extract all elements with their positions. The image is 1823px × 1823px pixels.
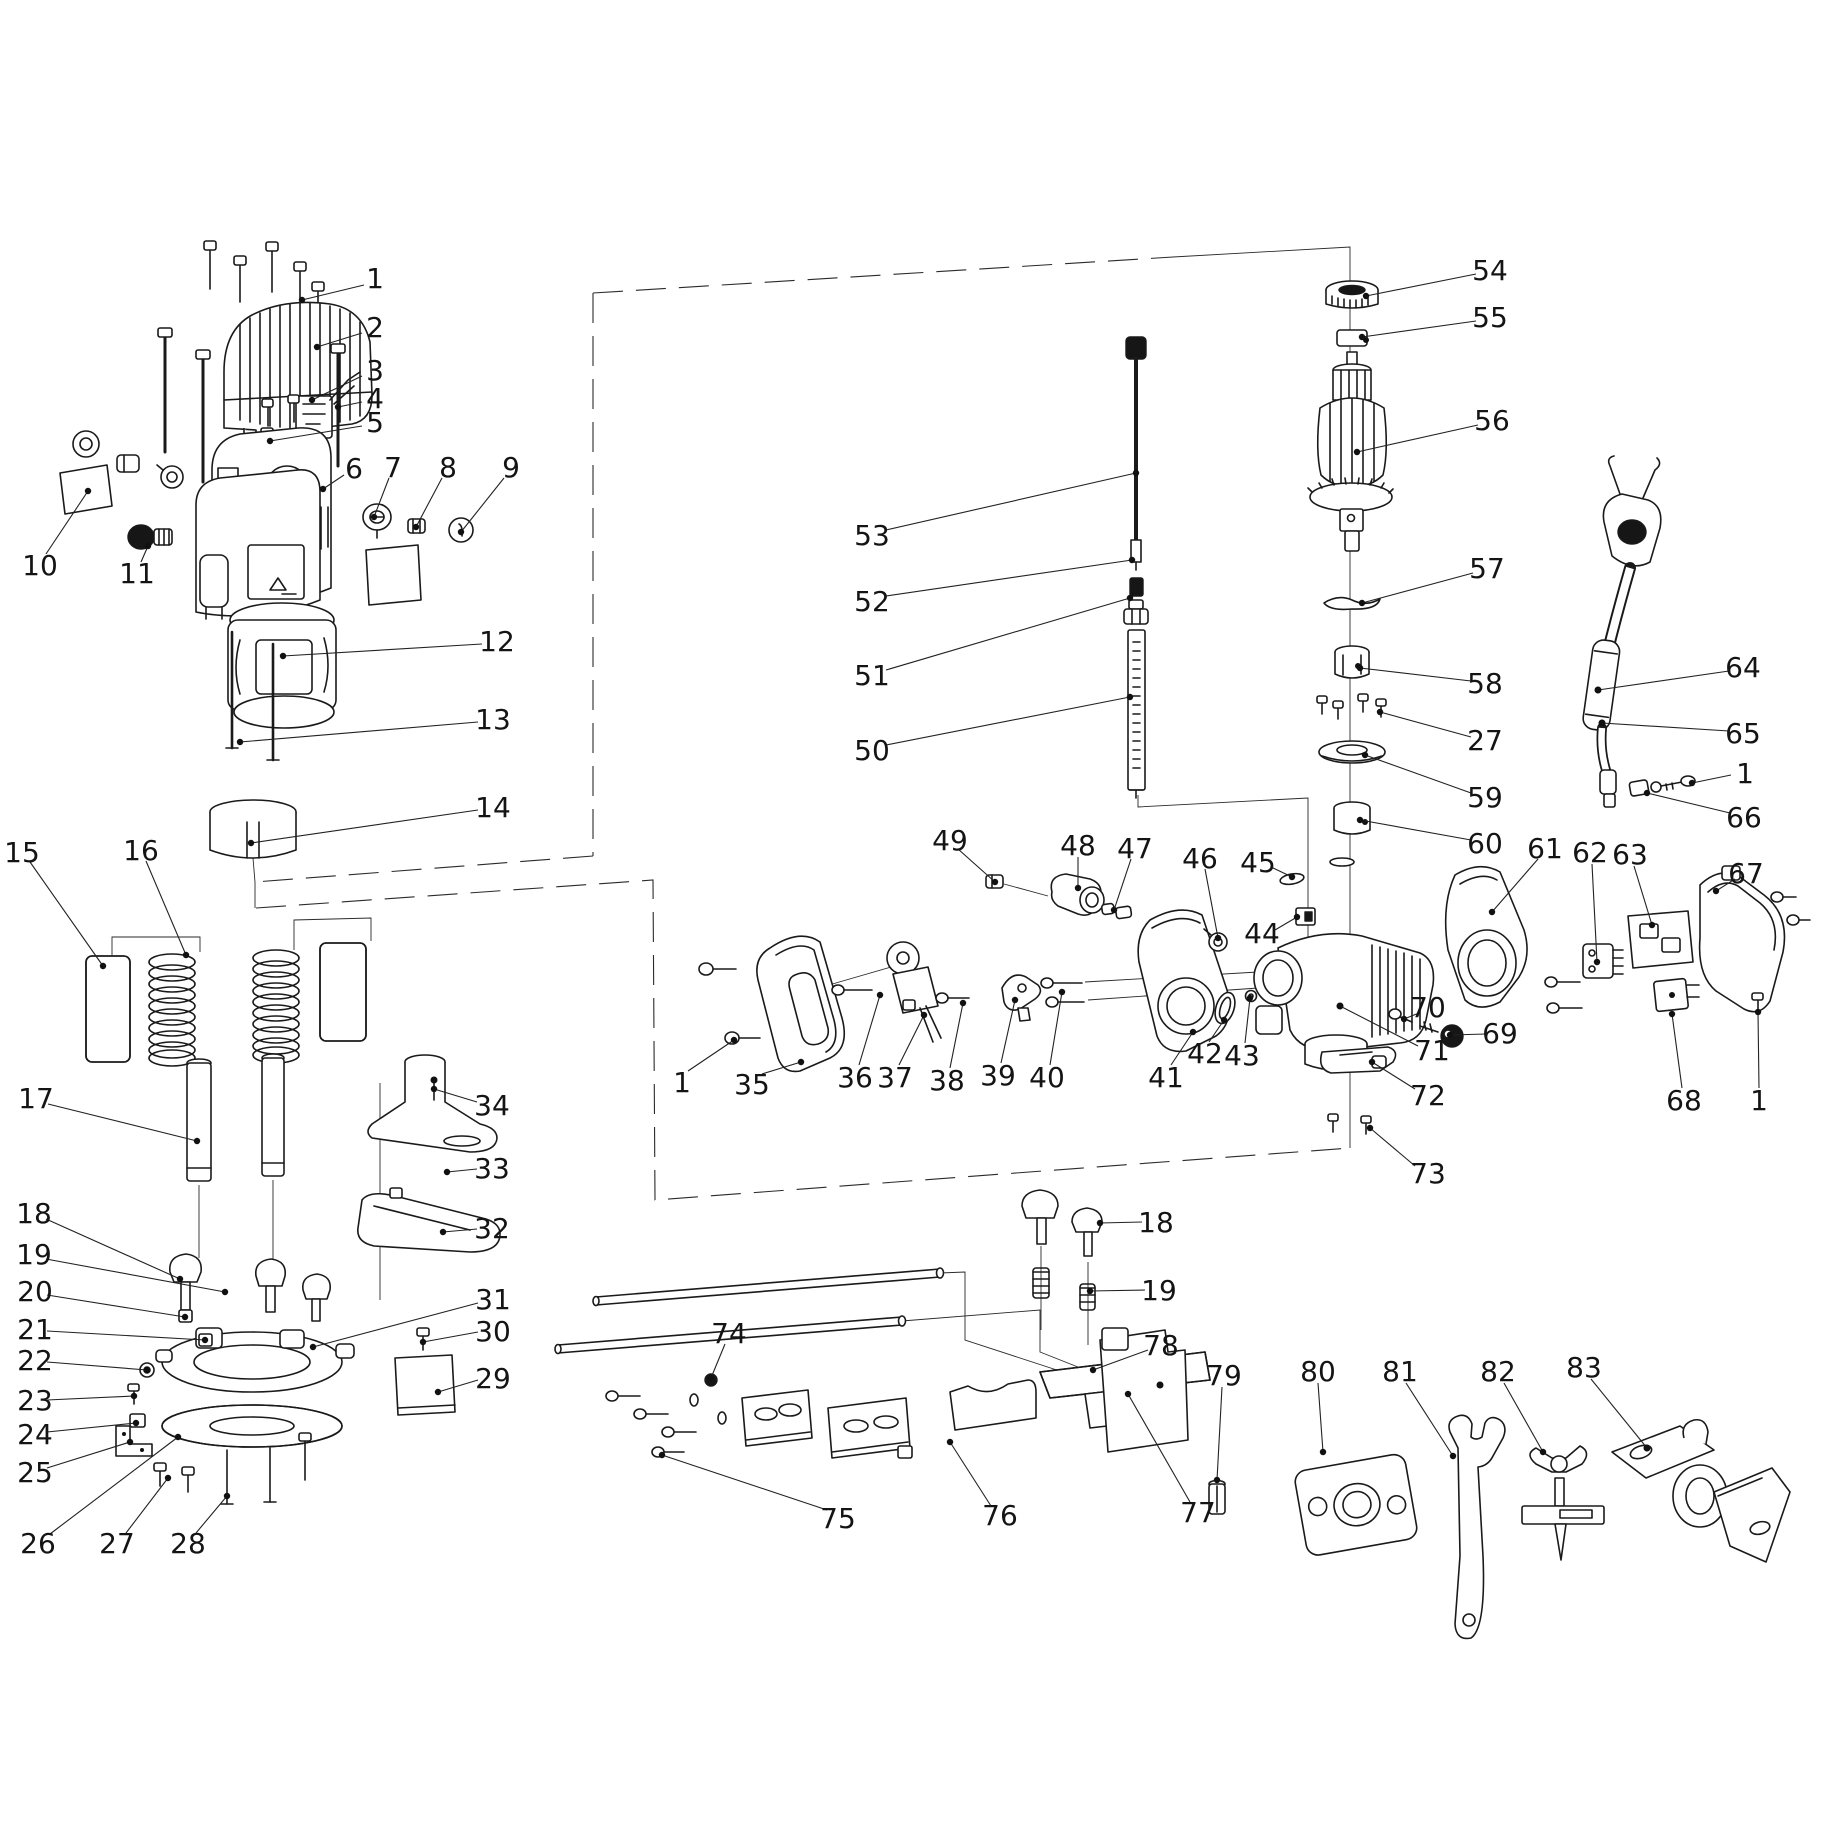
leader-dot-34 — [431, 1086, 437, 1092]
leader-dot-56 — [1354, 449, 1360, 455]
leader-dot-79 — [1214, 1477, 1220, 1483]
leader-dot-13 — [237, 739, 243, 745]
part-73-screws — [1328, 1114, 1371, 1134]
callout-22: 22 — [17, 1344, 53, 1377]
leader-line-57 — [1362, 573, 1473, 603]
leader-dot-6 — [320, 486, 326, 492]
leader-line-16 — [146, 861, 186, 955]
part-57-wave-washer — [1324, 598, 1380, 610]
part-39-lock-lever — [1002, 975, 1040, 1021]
part-nameplate-right — [366, 545, 421, 605]
callout-18: 18 — [1138, 1206, 1174, 1239]
leader-line-27 — [1380, 712, 1471, 737]
callout-67: 67 — [1728, 857, 1764, 890]
callout-2: 2 — [366, 311, 384, 344]
leader-line-36 — [859, 995, 880, 1065]
callout-69: 69 — [1482, 1017, 1518, 1050]
callout-32: 32 — [474, 1212, 510, 1245]
leader-line-64 — [1598, 671, 1729, 690]
part-64-66-power-cord — [1582, 456, 1661, 807]
leader-dot-17 — [194, 1138, 200, 1144]
leader-line-9 — [461, 478, 504, 532]
part-63-switch-block — [1628, 911, 1693, 968]
leader-dot-49 — [992, 879, 998, 885]
part-72-clamp-bracket — [1321, 1047, 1396, 1073]
callout-55: 55 — [1472, 301, 1508, 334]
callout-30: 30 — [475, 1315, 511, 1348]
callout-61: 61 — [1527, 832, 1563, 865]
leader-dot-60 — [1357, 817, 1363, 823]
leader-dot-10 — [85, 488, 91, 494]
callout-54: 54 — [1472, 254, 1508, 287]
callout-74: 74 — [711, 1317, 747, 1350]
callout-81: 81 — [1382, 1355, 1418, 1388]
leader-line-17 — [48, 1104, 197, 1141]
leader-line-1 — [688, 1040, 734, 1071]
leader-dot-1 — [731, 1037, 737, 1043]
leader-dot-24 — [133, 1420, 139, 1426]
leader-line-59 — [1365, 755, 1471, 793]
leader-line-15 — [30, 862, 103, 966]
leader-dot-28 — [224, 1493, 230, 1499]
leader-dot-64 — [1595, 687, 1601, 693]
part-motor-body-lower — [196, 470, 320, 619]
leader-dot-61 — [1489, 909, 1495, 915]
leader-dot-65 — [1599, 720, 1605, 726]
callout-29: 29 — [475, 1362, 511, 1395]
leader-line-33 — [447, 1169, 477, 1172]
callout-58: 58 — [1467, 667, 1503, 700]
leader-dot-18 — [1097, 1220, 1103, 1226]
callout-60: 60 — [1467, 827, 1503, 860]
leader-dot-19 — [222, 1289, 228, 1295]
leader-dot-71 — [1337, 1003, 1343, 1009]
callout-33: 33 — [474, 1152, 510, 1185]
callout-13: 13 — [475, 703, 511, 736]
leader-dot-37 — [921, 1012, 927, 1018]
part-56-armature — [1308, 352, 1393, 551]
leader-dot-23 — [131, 1393, 137, 1399]
callout-18: 18 — [16, 1197, 52, 1230]
callout-49: 49 — [932, 824, 968, 857]
leader-dot-57 — [1359, 600, 1365, 606]
leader-dot-43 — [1247, 995, 1253, 1001]
leader-line-38 — [950, 1003, 963, 1068]
leader-dot-9 — [458, 529, 464, 535]
leader-dot-78 — [1090, 1367, 1096, 1373]
callout-71: 71 — [1414, 1034, 1450, 1067]
leader-line-79 — [1217, 1387, 1222, 1480]
callout-1: 1 — [673, 1066, 691, 1099]
leader-line-18 — [1100, 1222, 1142, 1223]
leader-line-76 — [950, 1442, 991, 1506]
callout-51: 51 — [854, 659, 890, 692]
leader-dot-53 — [1133, 470, 1139, 476]
part-14-clamp-ring — [210, 800, 296, 858]
leader-dot-45 — [1289, 874, 1295, 880]
leader-dot-3 — [309, 397, 315, 403]
leader-line-22 — [47, 1362, 147, 1370]
part-83-roller-guide — [1612, 1420, 1790, 1562]
part-19-fence-springs — [1033, 1268, 1095, 1310]
part-51-nut — [1124, 600, 1148, 624]
part-16-spring-coil — [149, 954, 195, 1066]
leader-dot-72 — [1369, 1059, 1375, 1065]
part-15-spring-dense-left — [86, 956, 130, 1062]
leader-dot-25 — [127, 1439, 133, 1445]
leader-dot-1 — [299, 297, 305, 303]
callout-57: 57 — [1469, 552, 1505, 585]
callout-62: 62 — [1572, 836, 1608, 869]
leader-line-1 — [1758, 1012, 1759, 1088]
leader-dot-7 — [371, 514, 377, 520]
leader-dot-14 — [248, 840, 254, 846]
callout-42: 42 — [1187, 1037, 1223, 1070]
callout-82: 82 — [1480, 1355, 1516, 1388]
leader-line-66 — [1647, 793, 1730, 813]
part-80-template-guide-plate — [1293, 1453, 1418, 1557]
leader-line-47 — [1114, 859, 1131, 910]
part-arch-bridge — [950, 1380, 1036, 1430]
leader-dot-81 — [1450, 1453, 1456, 1459]
callout-21: 21 — [17, 1313, 53, 1346]
leader-dot-5 — [267, 438, 273, 444]
part-61-handle-right — [1446, 867, 1527, 1007]
leader-dot-42 — [1221, 1017, 1227, 1023]
callout-77: 77 — [1180, 1496, 1216, 1529]
leader-line-31 — [313, 1303, 478, 1347]
leader-dot-22 — [144, 1367, 150, 1373]
callout-53: 53 — [854, 519, 890, 552]
callout-75: 75 — [820, 1502, 856, 1535]
leader-line-72 — [1372, 1062, 1415, 1089]
part-36-screw — [832, 985, 872, 995]
leader-line-53 — [886, 473, 1136, 530]
leader-dot-50 — [1127, 694, 1133, 700]
part-74-washers-screws — [606, 1374, 754, 1457]
leader-line-39 — [1001, 1000, 1015, 1063]
leader-dot-29 — [435, 1389, 441, 1395]
leader-dot-62 — [1594, 959, 1600, 965]
leader-dot-38 — [960, 1000, 966, 1006]
part-62-terminal-block — [1583, 944, 1623, 978]
leader-line-73 — [1370, 1128, 1415, 1166]
callout-23: 23 — [17, 1384, 53, 1417]
part-50-depth-scale — [1128, 630, 1145, 798]
leader-dot-77 — [1125, 1391, 1131, 1397]
callout-27: 27 — [1467, 724, 1503, 757]
part-1-handle-screws-left — [699, 963, 760, 1044]
callout-83: 83 — [1566, 1351, 1602, 1384]
part-76-fence-plate-right — [828, 1398, 912, 1458]
callout-12: 12 — [479, 625, 515, 658]
leader-dot-58 — [1357, 665, 1363, 671]
callout-64: 64 — [1725, 651, 1761, 684]
leader-line-80 — [1318, 1383, 1323, 1452]
callout-68: 68 — [1666, 1084, 1702, 1117]
callout-1: 1 — [1736, 757, 1754, 790]
callout-44: 44 — [1244, 917, 1280, 950]
leader-line-8 — [416, 478, 442, 527]
part-35-handle-left — [757, 936, 844, 1071]
callout-40: 40 — [1029, 1061, 1065, 1094]
diagram-canvas: 1234567891011121314151617181920212223242… — [0, 0, 1823, 1823]
part-18-fence-knobs — [1022, 1190, 1103, 1256]
callout-56: 56 — [1474, 404, 1510, 437]
leader-line-58 — [1360, 668, 1471, 681]
callout-63: 63 — [1612, 838, 1648, 871]
callout-66: 66 — [1726, 801, 1762, 834]
callout-65: 65 — [1725, 717, 1761, 750]
callout-25: 25 — [17, 1456, 53, 1489]
leader-dot-35 — [798, 1059, 804, 1065]
leader-dot-41 — [1190, 1029, 1196, 1035]
part-26-base-plate — [162, 1405, 342, 1447]
leader-line-21 — [47, 1331, 205, 1340]
callout-19: 19 — [16, 1238, 52, 1271]
part-68-cover-plate — [1654, 978, 1699, 1011]
leader-line-30 — [423, 1332, 478, 1342]
leader-line-65 — [1602, 723, 1729, 731]
leader-line-55 — [1362, 321, 1476, 337]
leader-dot-47 — [1111, 907, 1117, 913]
leader-dot-80 — [1320, 1449, 1326, 1455]
leader-dot-1 — [1755, 1009, 1761, 1015]
callout-48: 48 — [1060, 829, 1096, 862]
callout-7: 7 — [384, 451, 402, 484]
leader-dot-8 — [413, 524, 419, 530]
callout-72: 72 — [1410, 1079, 1446, 1112]
callout-1: 1 — [1750, 1084, 1768, 1117]
callout-27: 27 — [99, 1527, 135, 1560]
leader-dot-70 — [1401, 1016, 1407, 1022]
part-53-depth-rod — [1126, 337, 1146, 570]
leader-dot-67 — [1713, 888, 1719, 894]
leader-line-27 — [126, 1478, 168, 1533]
part-27-screws-armature — [1317, 694, 1386, 719]
callout-70: 70 — [1410, 991, 1446, 1024]
leader-dot-20 — [182, 1314, 188, 1320]
leader-line-18 — [46, 1219, 180, 1279]
leader-line-60 — [1360, 820, 1471, 840]
callout-46: 46 — [1182, 842, 1218, 875]
leader-dot-73 — [1367, 1125, 1373, 1131]
callout-41: 41 — [1148, 1061, 1184, 1094]
leader-line-50 — [886, 697, 1130, 745]
part-54-bearing — [1326, 281, 1378, 308]
leader-dot-30 — [420, 1339, 426, 1345]
leader-dot-36 — [877, 992, 883, 998]
callout-11: 11 — [119, 557, 155, 590]
callout-24: 24 — [17, 1418, 53, 1451]
part-81-wrench — [1449, 1415, 1505, 1638]
callout-8: 8 — [439, 451, 457, 484]
callout-16: 16 — [123, 834, 159, 867]
part-18-19-base-knobs — [170, 1254, 330, 1321]
part-guide-rods — [555, 1268, 944, 1354]
leader-dot-83 — [1644, 1445, 1650, 1451]
leader-dot-1 — [1689, 780, 1695, 786]
part-75-fence-plate-left — [742, 1390, 812, 1446]
part-58-spindle-nut — [1335, 646, 1369, 678]
leader-dot-40 — [1059, 989, 1065, 995]
callout-17: 17 — [18, 1082, 54, 1115]
part-37-switch — [887, 942, 941, 1042]
callout-20: 20 — [17, 1275, 53, 1308]
part-o-ring — [1330, 858, 1354, 866]
callout-26: 26 — [20, 1527, 56, 1560]
leader-dot-74 — [708, 1375, 714, 1381]
leader-line-75 — [662, 1455, 827, 1510]
leader-dot-2 — [314, 344, 320, 350]
leader-dot-54 — [1363, 293, 1369, 299]
leader-dot-27 — [1377, 709, 1383, 715]
callout-79: 79 — [1206, 1359, 1242, 1392]
leader-dot-39 — [1012, 997, 1018, 1003]
leader-dot-27 — [165, 1475, 171, 1481]
leader-dot-12 — [280, 653, 286, 659]
part-17-guide-columns — [187, 1054, 284, 1181]
leader-line-82 — [1504, 1383, 1543, 1452]
leader-dot-75 — [659, 1452, 665, 1458]
callout-52: 52 — [854, 585, 890, 618]
callout-34: 34 — [474, 1089, 510, 1122]
leader-dot-15 — [100, 963, 106, 969]
callout-6: 6 — [345, 452, 363, 485]
part-spring-coil-2 — [253, 950, 299, 1063]
part-base-casting — [156, 1328, 354, 1392]
part-12-stator — [228, 603, 336, 728]
leader-line-54 — [1366, 274, 1476, 296]
part-82-trammel-point — [1522, 1446, 1604, 1560]
callout-50: 50 — [854, 734, 890, 767]
part-41-handle-inner-left — [1138, 910, 1229, 1051]
leader-dot-32 — [440, 1229, 446, 1235]
leader-dot-82 — [1540, 1449, 1546, 1455]
leader-dot-59 — [1362, 752, 1368, 758]
leader-line-1 — [1692, 775, 1731, 783]
callout-9: 9 — [502, 451, 520, 484]
leader-dot-76 — [947, 1439, 953, 1445]
leader-dot-52 — [1129, 557, 1135, 563]
leader-dot-68 — [1669, 1011, 1675, 1017]
part-spring-dense-2 — [320, 943, 366, 1041]
callout-10: 10 — [22, 549, 58, 582]
leader-dot-33 — [444, 1169, 450, 1175]
callout-59: 59 — [1467, 781, 1503, 814]
callout-15: 15 — [4, 836, 40, 869]
leader-dot-18 — [177, 1276, 183, 1282]
leader-dot-44 — [1294, 914, 1300, 920]
leader-dot-21 — [202, 1337, 208, 1343]
callout-19: 19 — [1141, 1274, 1177, 1307]
leader-line-37 — [899, 1015, 924, 1065]
callout-28: 28 — [170, 1527, 206, 1560]
callout-39: 39 — [980, 1059, 1016, 1092]
part-52-stop-block — [1130, 578, 1143, 596]
callout-35: 35 — [734, 1068, 770, 1101]
leader-line-19 — [1090, 1290, 1145, 1291]
leader-line-81 — [1406, 1383, 1453, 1456]
leader-line-23 — [47, 1396, 134, 1400]
leader-dot-48 — [1075, 885, 1081, 891]
leader-dot-63 — [1649, 922, 1655, 928]
leader-line-83 — [1591, 1379, 1647, 1448]
callout-80: 80 — [1300, 1355, 1336, 1388]
leader-dot-4 — [335, 404, 341, 410]
leader-line-20 — [47, 1295, 185, 1317]
callout-36: 36 — [837, 1061, 873, 1094]
leader-line-68 — [1672, 1014, 1682, 1088]
leader-line-26 — [50, 1437, 178, 1534]
callout-47: 47 — [1117, 832, 1153, 865]
part-29-guide-plate — [395, 1355, 455, 1415]
callout-5: 5 — [366, 406, 384, 439]
callout-43: 43 — [1224, 1039, 1260, 1072]
leader-line-43 — [1245, 998, 1250, 1043]
leader-dot-55 — [1359, 334, 1365, 340]
callout-78: 78 — [1143, 1329, 1179, 1362]
part-66-connector-and-screw — [1629, 776, 1695, 796]
callout-73: 73 — [1410, 1157, 1446, 1190]
part-60-bearing-sleeve — [1334, 802, 1370, 834]
callout-45: 45 — [1240, 846, 1276, 879]
leader-dot-26 — [175, 1434, 181, 1440]
part-screws-61 — [1545, 977, 1582, 1013]
leader-line-51 — [886, 598, 1130, 670]
callout-14: 14 — [475, 791, 511, 824]
leader-dot-16 — [183, 952, 189, 958]
leader-dot-46 — [1215, 935, 1221, 941]
leader-line-52 — [886, 560, 1132, 596]
leader-dot-31 — [310, 1344, 316, 1350]
callout-31: 31 — [475, 1283, 511, 1316]
leader-dot-19 — [1087, 1288, 1093, 1294]
callout-1: 1 — [366, 262, 384, 295]
leader-dot-11 — [145, 543, 151, 549]
leader-dot-66 — [1644, 790, 1650, 796]
leader-dot-51 — [1127, 595, 1133, 601]
callout-38: 38 — [929, 1064, 965, 1097]
callout-37: 37 — [877, 1061, 913, 1094]
callout-76: 76 — [982, 1499, 1018, 1532]
exploded-parts-diagram: 1234567891011121314151617181920212223242… — [0, 0, 1823, 1823]
part-59-baffle-disc — [1319, 741, 1385, 763]
